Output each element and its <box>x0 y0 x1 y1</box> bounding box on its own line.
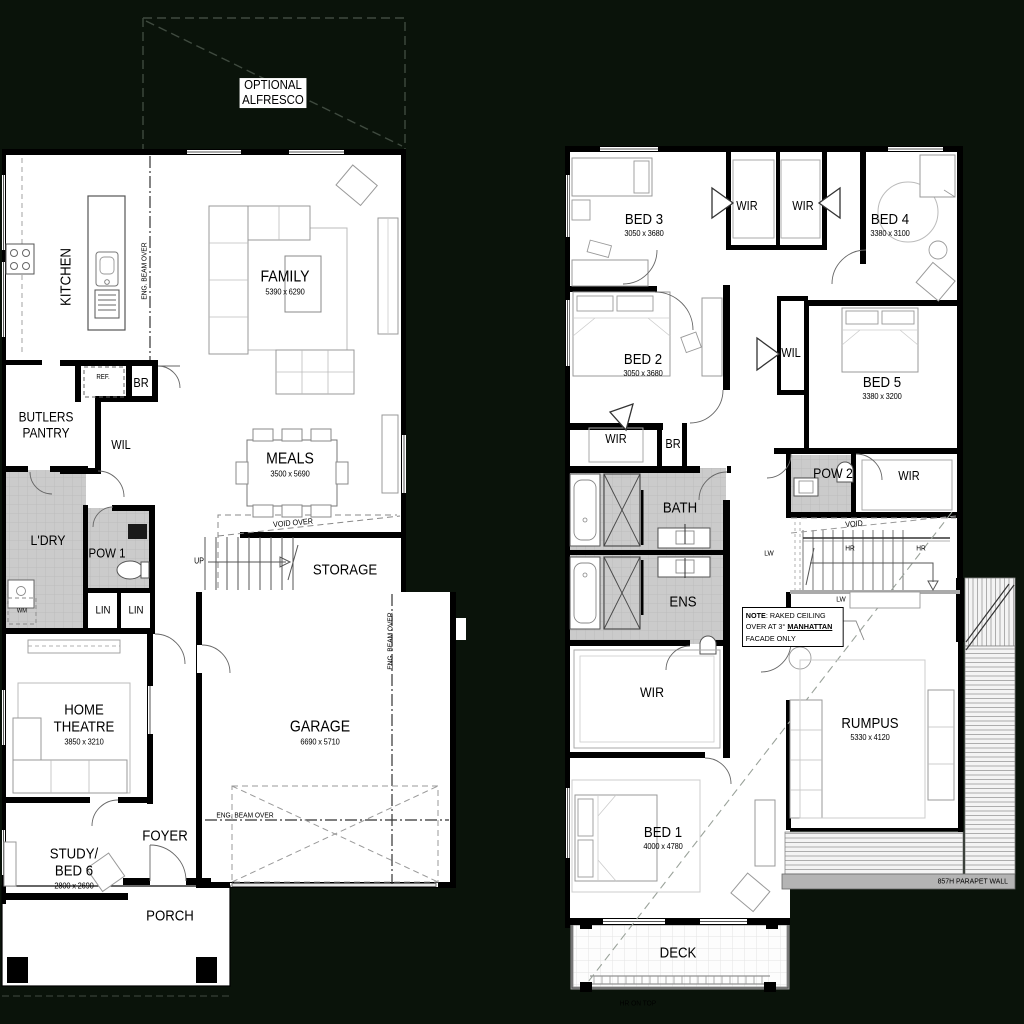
label-pow2: POW 2 <box>813 465 853 481</box>
rumpus-dim: 5330 x 4120 <box>841 733 898 743</box>
label-br-ground: BR <box>133 376 148 390</box>
label-porch: PORCH <box>146 907 194 924</box>
label-hr-on-top: HR ON TOP <box>620 1000 656 1009</box>
label-bed4: BED 4 3380 x 3100 <box>870 211 909 239</box>
rumpus-name: RUMPUS <box>841 715 898 732</box>
label-meals: MEALS 3500 x 5690 <box>266 450 314 479</box>
label-wir-bed4: WIR <box>792 199 813 213</box>
bed4-dim: 3380 x 3100 <box>870 229 909 239</box>
label-lin-2: LIN <box>127 605 146 618</box>
family-name: FAMILY <box>260 268 309 286</box>
label-lw-1: LW <box>764 550 773 559</box>
study-bed6-dim: 2800 x 2690 <box>48 881 99 891</box>
note-raked-ceiling: NOTE: RAKED CEILING OVER AT 3° MANHATTAN… <box>742 607 844 647</box>
label-bed2: BED 2 3050 x 3680 <box>623 351 662 379</box>
bed2-name: BED 2 <box>623 351 662 368</box>
label-up: UP <box>194 556 204 565</box>
note-line2-bold: MANHATTAN <box>787 622 832 631</box>
label-bath: BATH <box>663 499 697 516</box>
label-hr-2: HR <box>916 545 926 554</box>
label-garage: GARAGE 6690 x 5710 <box>290 718 350 747</box>
note-line3: FACADE ONLY <box>746 634 796 643</box>
label-wir-bed5: WIR <box>898 469 919 483</box>
bed3-name: BED 3 <box>624 211 663 228</box>
label-lw-2: LW <box>836 596 845 605</box>
bed1-dim: 4000 x 4780 <box>643 842 682 852</box>
garage-dim: 6690 x 5710 <box>290 738 350 748</box>
note-line1: : RAKED CEILING <box>766 611 826 620</box>
label-pow1: POW 1 <box>89 547 126 562</box>
bed5-name: BED 5 <box>862 374 901 391</box>
label-butlers-pantry: BUTLERS PANTRY <box>18 409 74 440</box>
label-storage: STORAGE <box>313 561 377 578</box>
label-bed1: BED 1 4000 x 4780 <box>643 824 682 852</box>
label-void: VOID <box>845 519 863 530</box>
label-bed3: BED 3 3050 x 3680 <box>624 211 663 239</box>
label-br-first: BR <box>665 437 680 451</box>
label-ens: ENS <box>669 593 696 610</box>
label-bed5: BED 5 3380 x 3200 <box>862 374 901 402</box>
floor-plan-drawing <box>0 0 1024 1024</box>
label-kitchen: KITCHEN <box>57 248 74 306</box>
label-wir-bed2: WIR <box>605 432 626 446</box>
label-eng-beam-garage-h: ENG. BEAM OVER <box>216 812 273 821</box>
label-family: FAMILY 5390 x 6290 <box>260 268 309 297</box>
bed5-dim: 3380 x 3200 <box>862 392 901 402</box>
label-wil-first: WIL <box>781 346 801 360</box>
label-eng-beam-kitchen: ENG. BEAM OVER <box>141 242 150 299</box>
label-wm: WM <box>17 607 27 614</box>
label-deck: DECK <box>660 944 697 961</box>
label-laundry: L'DRY <box>31 532 66 548</box>
label-study-bed6: STUDY/ BED 6 2800 x 2690 <box>48 845 99 890</box>
label-optional-alfresco: OPTIONAL ALFRESCO <box>240 78 307 108</box>
garage-name: GARAGE <box>290 718 350 736</box>
label-lin-1: LIN <box>94 605 113 618</box>
bed4-name: BED 4 <box>870 211 909 228</box>
label-eng-beam-garage-v: ENG. BEAM OVER <box>387 612 396 669</box>
bed3-dim: 3050 x 3680 <box>624 229 663 239</box>
bed1-name: BED 1 <box>643 824 682 841</box>
home-theatre-name: HOME THEATRE <box>48 701 120 736</box>
label-wil-ground: WIL <box>111 438 131 452</box>
label-hr-1: HR <box>845 545 855 554</box>
home-theatre-dim: 3850 x 3210 <box>48 737 120 747</box>
note-line2-pre: OVER AT 3° <box>746 622 788 631</box>
label-wir-bed1: WIR <box>640 684 664 700</box>
note-label: NOTE <box>746 611 766 620</box>
label-parapet-wall: 857H PARAPET WALL <box>938 878 1008 887</box>
study-bed6-name: STUDY/ BED 6 <box>48 845 99 880</box>
label-rumpus: RUMPUS 5330 x 4120 <box>841 715 898 743</box>
label-foyer: FOYER <box>142 827 187 844</box>
label-home-theatre: HOME THEATRE 3850 x 3210 <box>48 701 120 746</box>
floor-plan-canvas: OPTIONAL ALFRESCO KITCHEN ENG. BEAM OVER… <box>0 0 1024 1024</box>
label-ref: REF. <box>96 374 109 382</box>
bed2-dim: 3050 x 3680 <box>623 369 662 379</box>
meals-name: MEALS <box>266 450 314 468</box>
meals-dim: 3500 x 5690 <box>266 470 314 480</box>
family-dim: 5390 x 6290 <box>260 288 309 298</box>
label-wir-bed3: WIR <box>736 199 757 213</box>
